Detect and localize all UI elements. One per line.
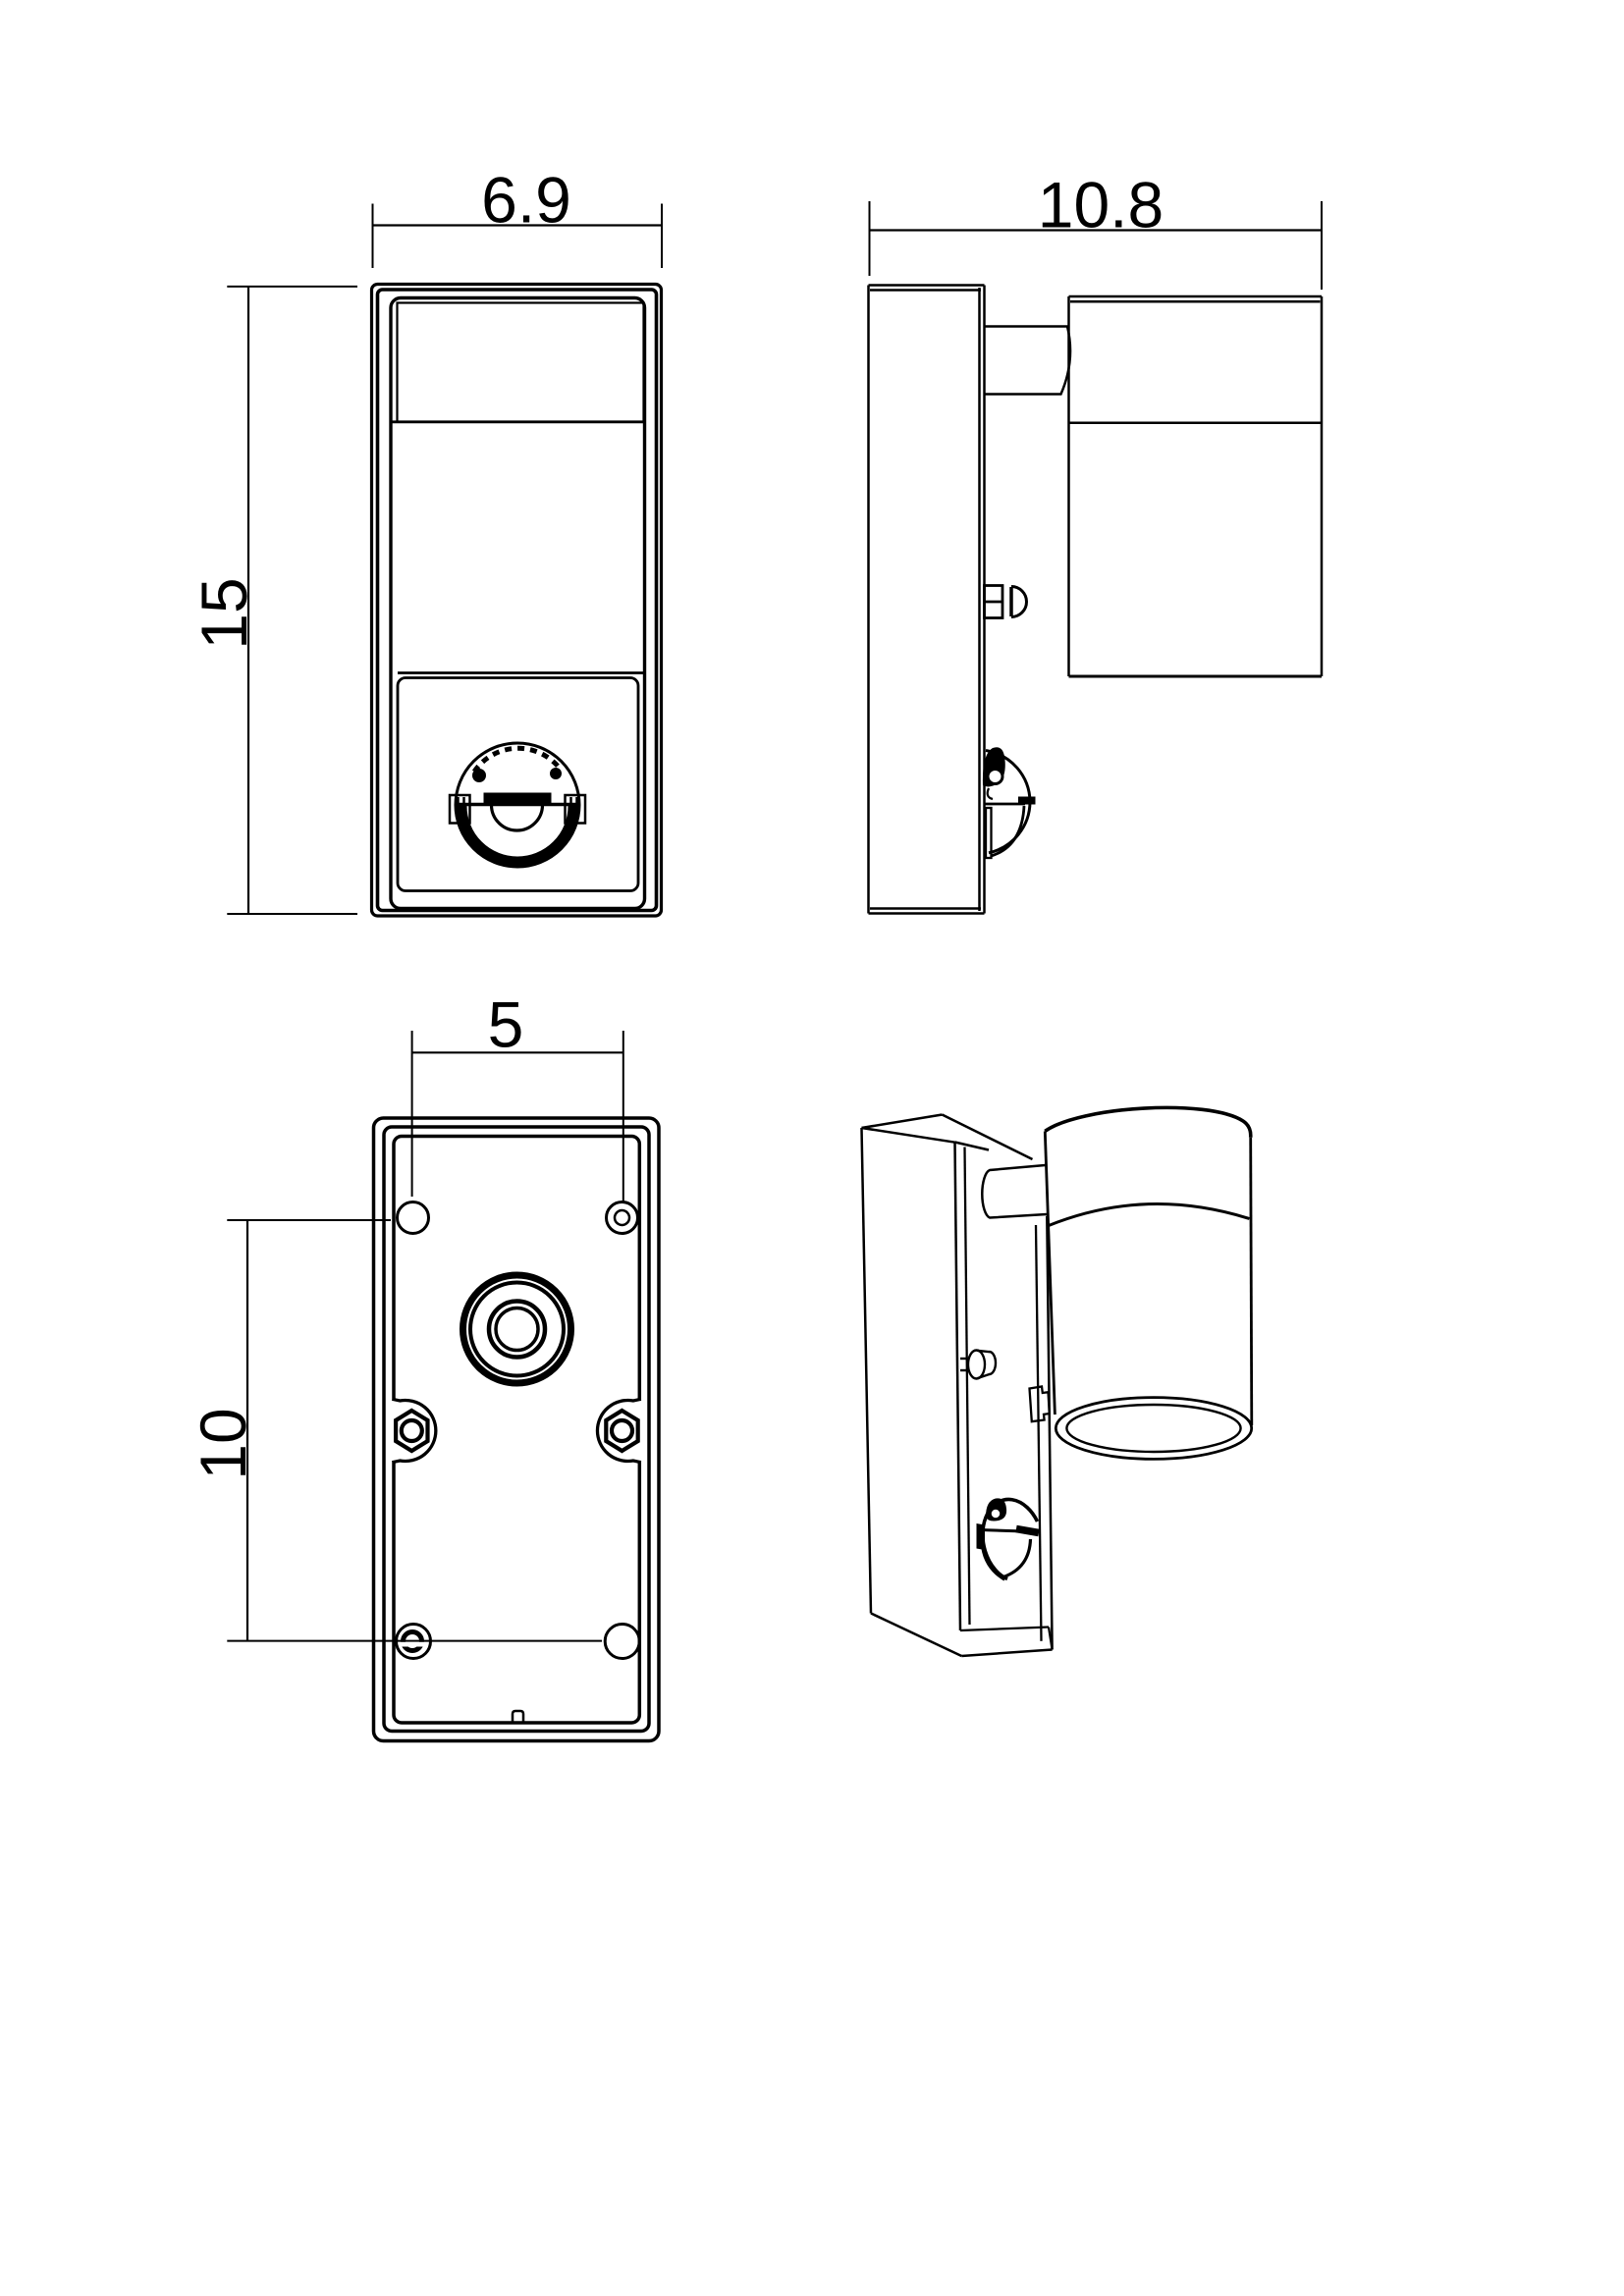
- svg-text:6.9: 6.9: [481, 164, 571, 237]
- svg-text:15: 15: [188, 577, 260, 649]
- svg-text:10.8: 10.8: [1038, 169, 1164, 241]
- svg-text:10: 10: [187, 1408, 259, 1479]
- svg-text:5: 5: [488, 988, 524, 1061]
